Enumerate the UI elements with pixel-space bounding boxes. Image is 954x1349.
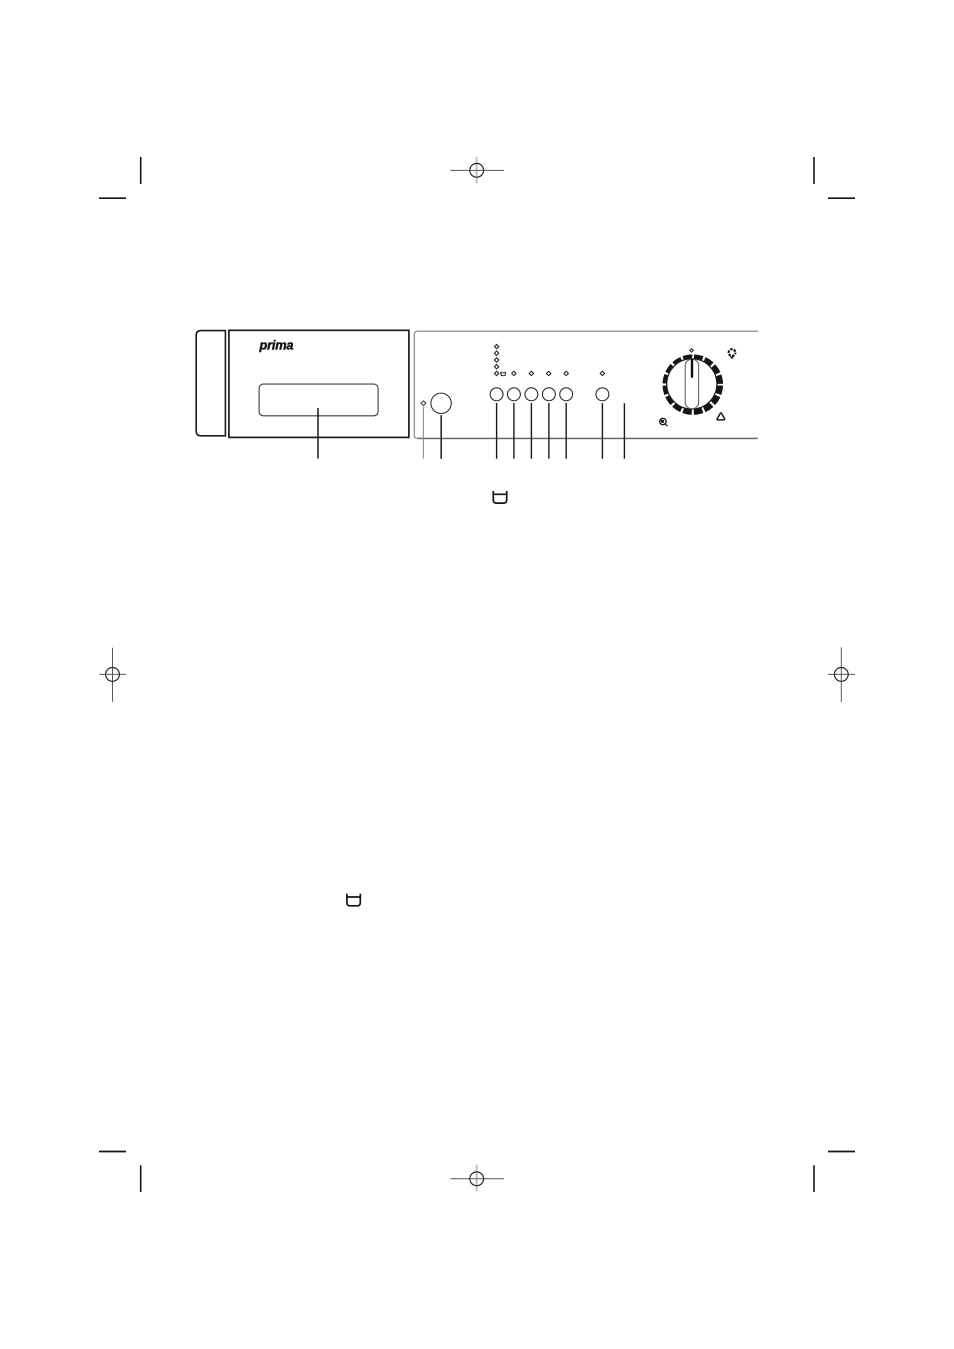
svg-text:prima: prima [259, 338, 294, 353]
